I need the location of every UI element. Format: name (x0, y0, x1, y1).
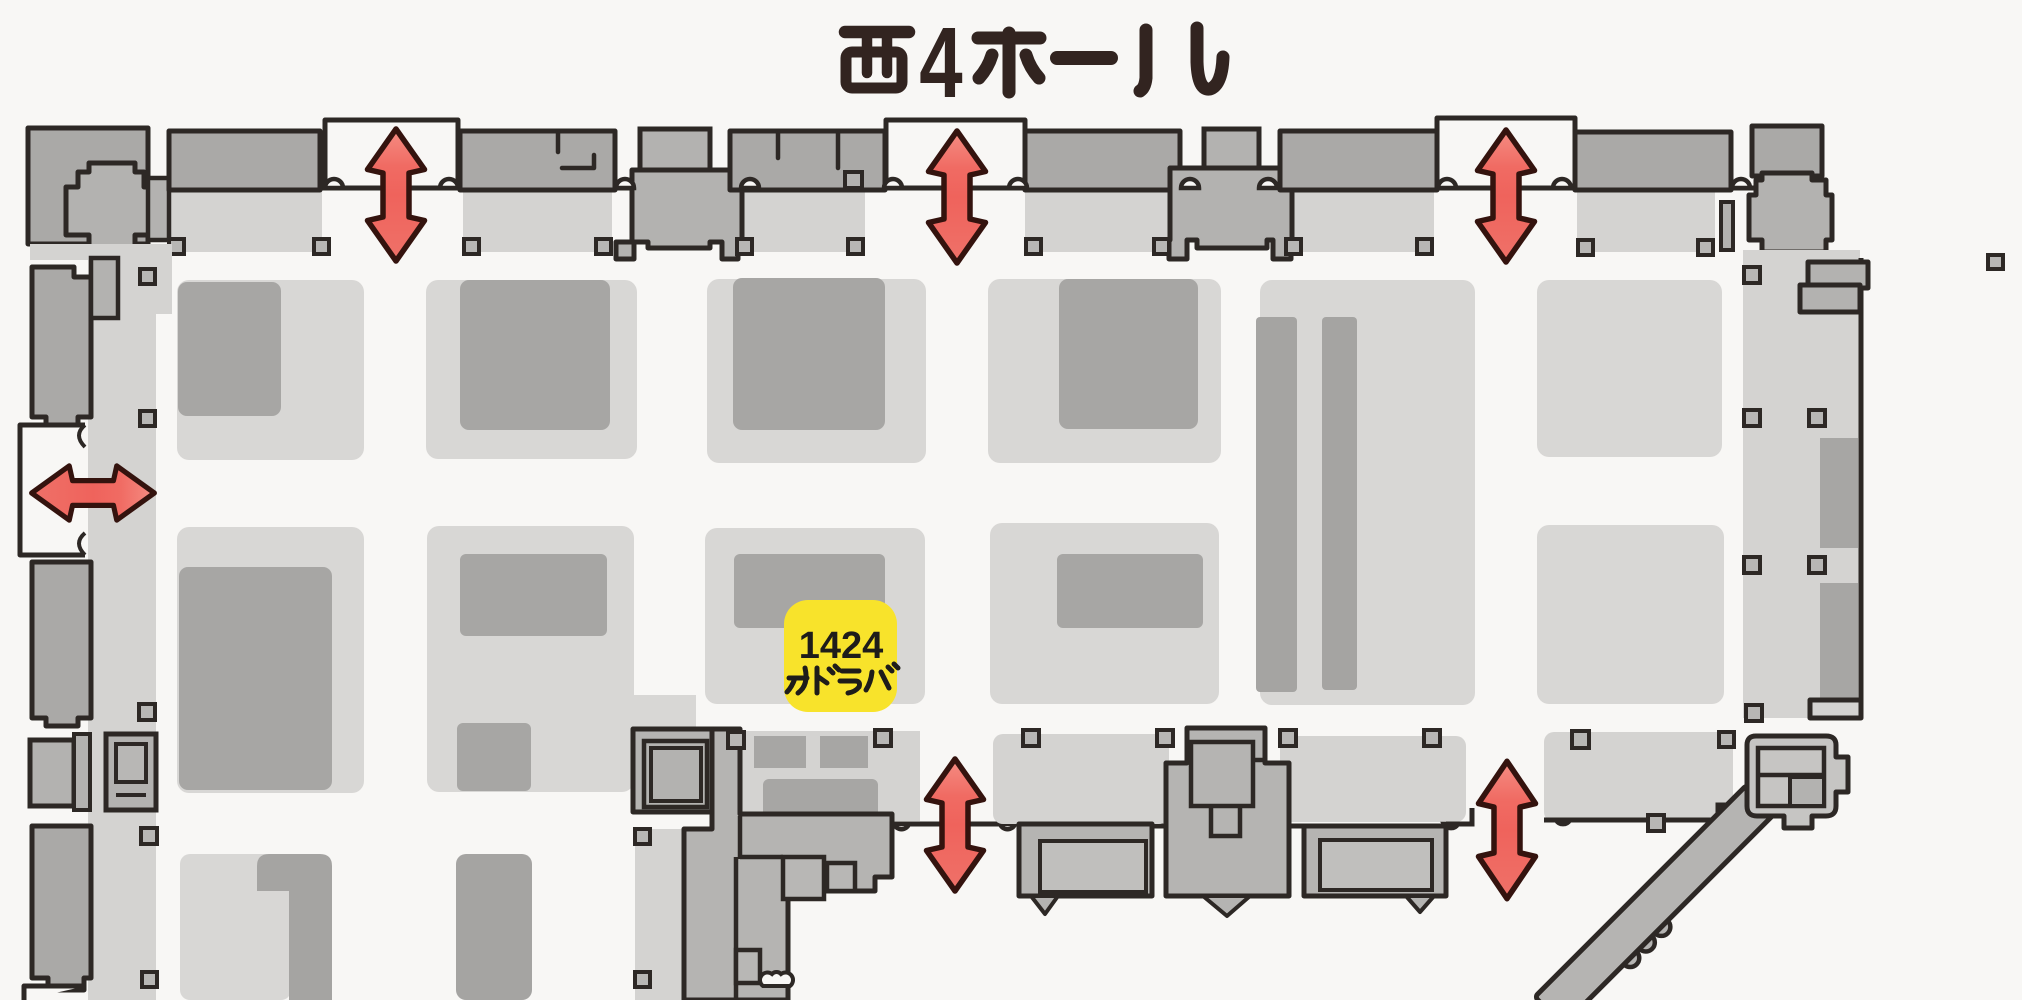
svg-text:4: 4 (919, 8, 962, 120)
svg-text:1424: 1424 (799, 625, 884, 667)
